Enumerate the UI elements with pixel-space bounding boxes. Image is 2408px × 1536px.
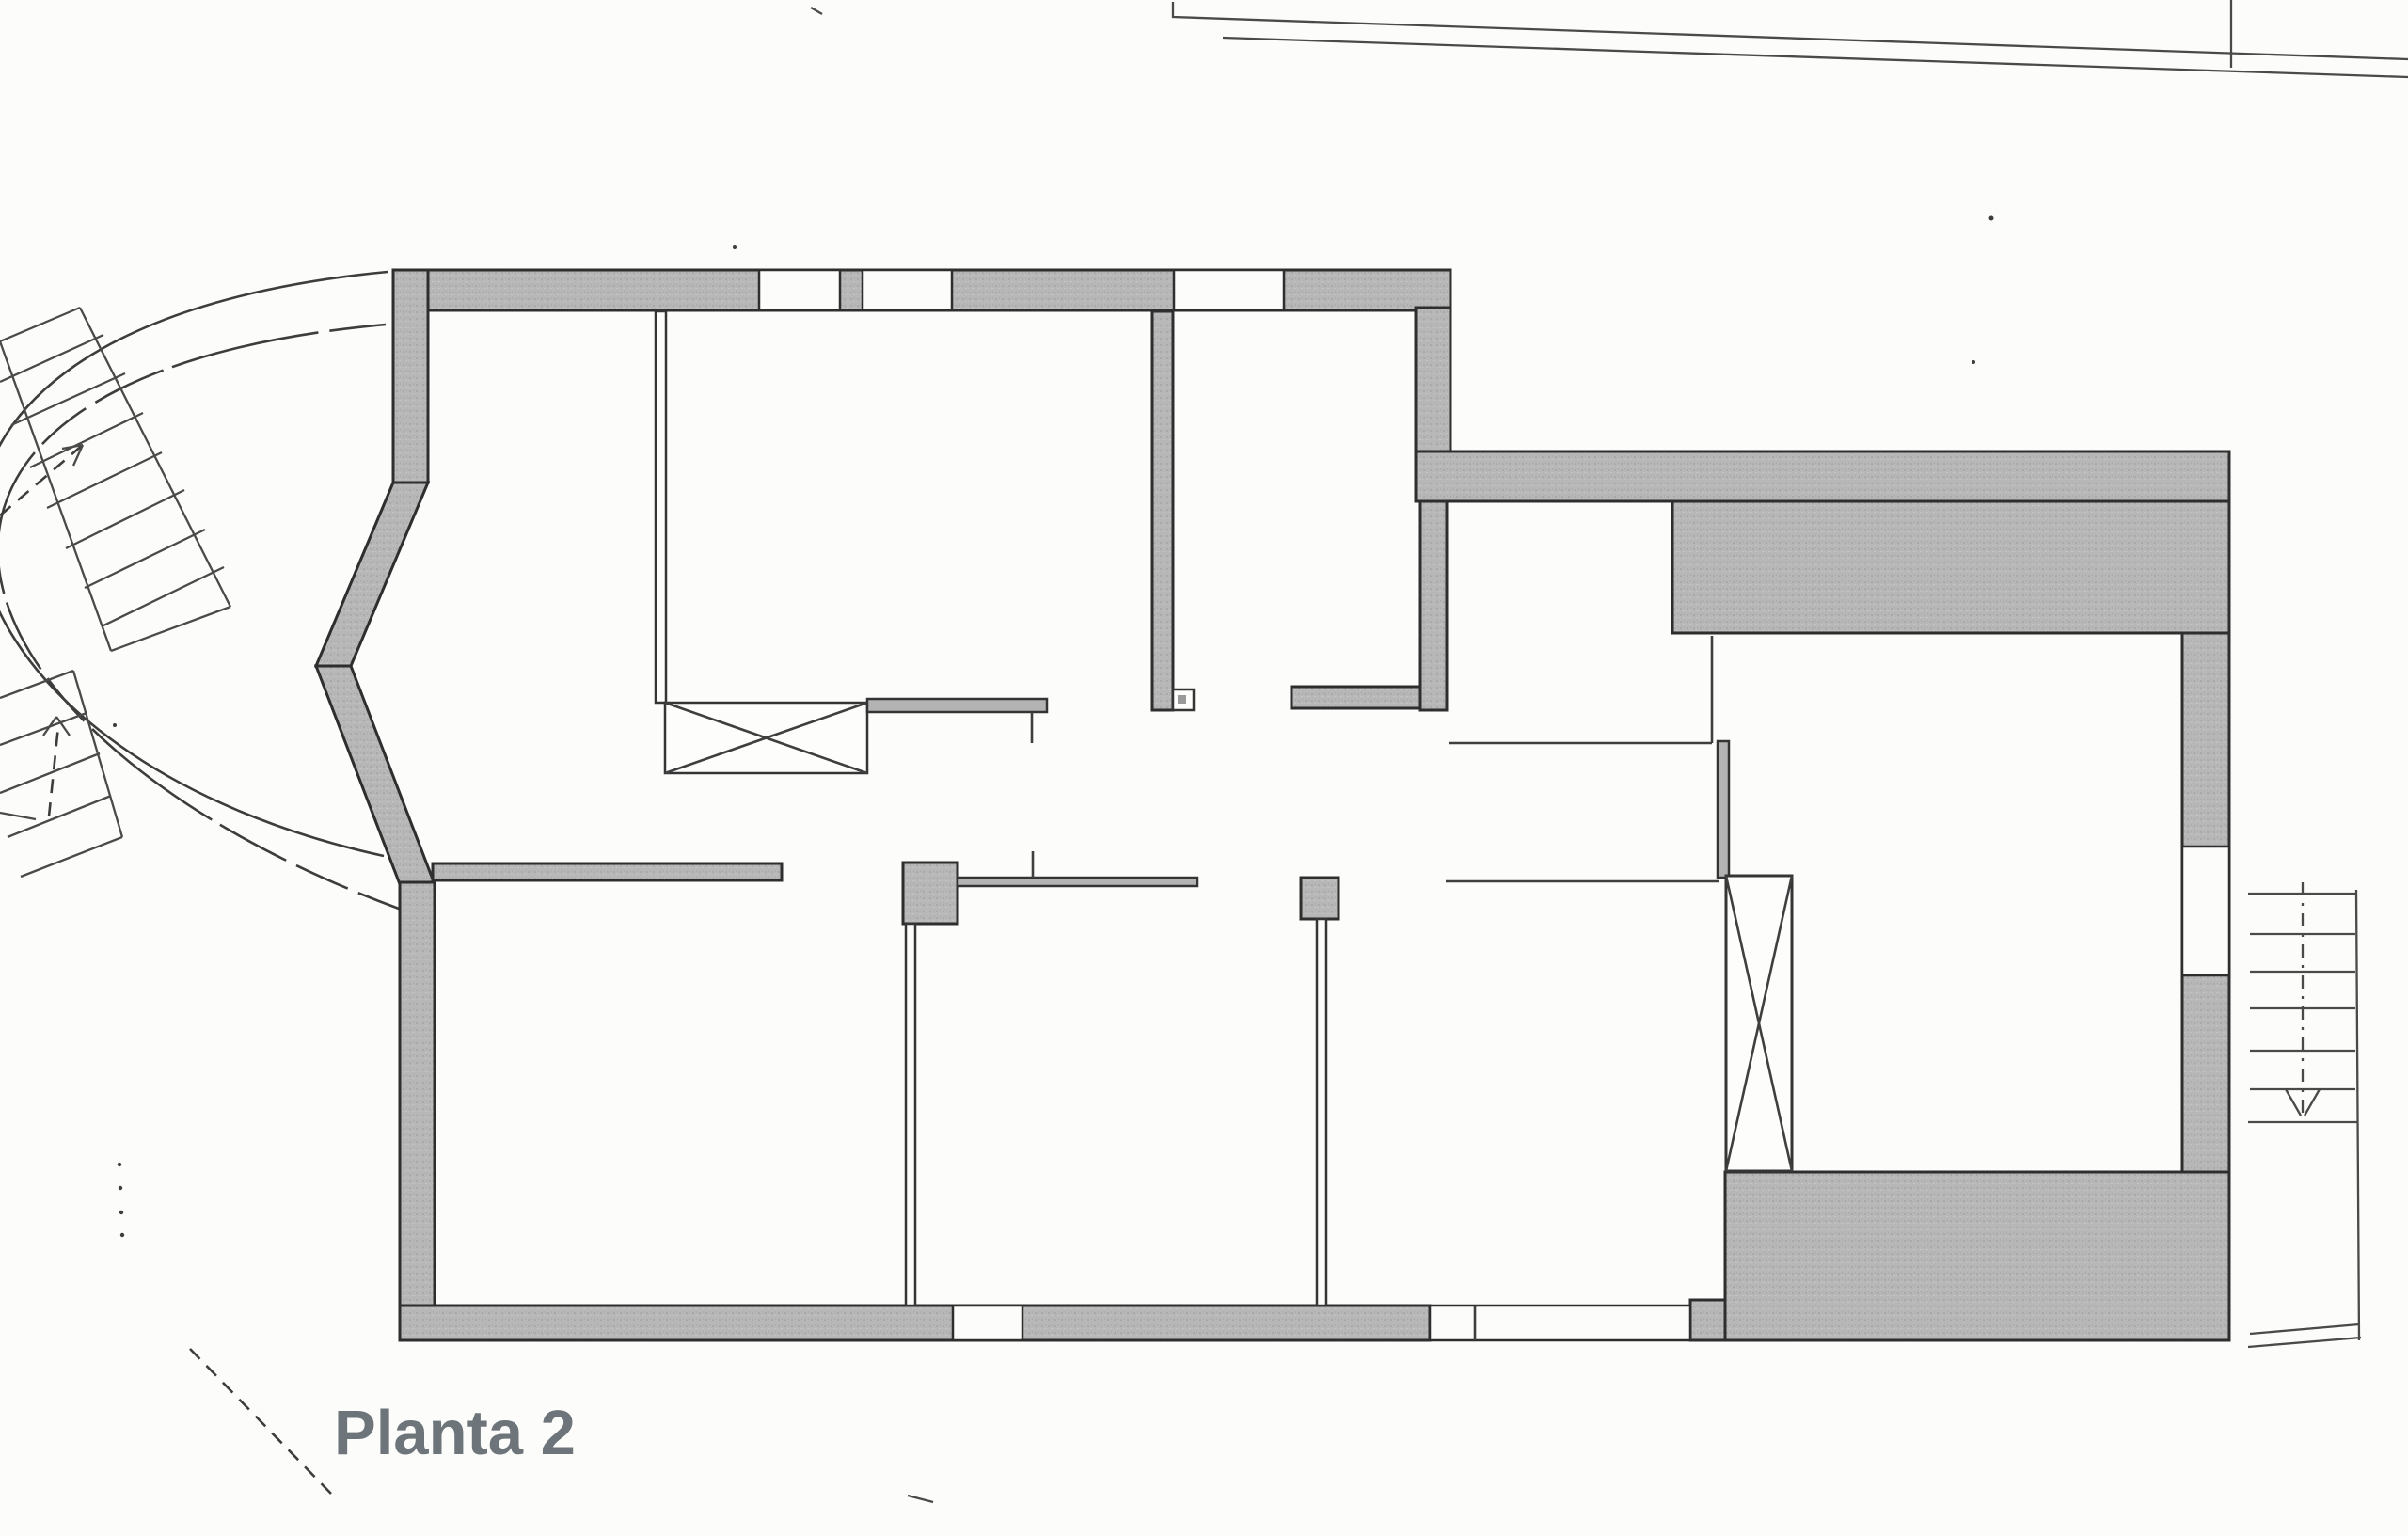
partition-bottom-room-1 — [906, 924, 915, 1306]
exterior-stairs-lower-left — [0, 671, 122, 877]
terrace-mass-top-right — [1672, 501, 2229, 633]
window-top-1 — [759, 270, 840, 310]
stair-edge — [2356, 890, 2359, 1340]
hall-wall-lower-middle — [958, 878, 1197, 886]
outer-wall-bottom — [400, 1306, 1430, 1340]
stair-arrowhead — [43, 717, 56, 736]
scan-mark — [811, 8, 822, 14]
column-block-2 — [1301, 878, 1339, 919]
outer-wall-bottom-step — [1690, 1300, 1725, 1340]
stair-edge — [2248, 1338, 2361, 1347]
outer-wall-right-upper — [1416, 308, 1450, 451]
stair-tread — [21, 837, 122, 877]
outer-wall-left-lower — [400, 882, 435, 1340]
scan-mark — [908, 1496, 933, 1502]
floor-plan-page: Planta 2 — [0, 0, 2408, 1536]
scan-mark — [1972, 360, 1975, 364]
partition-top-middle-room — [1152, 311, 1173, 710]
stair-tread — [0, 753, 100, 793]
bathroom-wall-left — [1420, 501, 1447, 710]
misc-scan-marks — [0, 8, 1994, 1502]
window-bottom-2-frame — [1430, 1306, 1690, 1340]
dotted-line-dot — [118, 1163, 121, 1166]
dotted-line-dot — [119, 1211, 123, 1214]
dashed-site-line — [190, 1349, 331, 1494]
stair-arrowhead — [2286, 1089, 2301, 1116]
partition-top-left-room — [656, 311, 666, 703]
stair-edge — [2250, 1324, 2359, 1334]
dotted-line-dot — [120, 1233, 124, 1237]
column-block-1 — [903, 863, 958, 924]
window-bottom-2 — [1430, 1306, 1690, 1340]
partition-bottom-room-2 — [1317, 919, 1326, 1306]
stair-arrowhead — [2305, 1089, 2320, 1116]
window-right — [2182, 847, 2229, 975]
stair-tread — [0, 713, 87, 745]
outer-wall-chamfer-lower — [316, 666, 435, 884]
stair-tread — [0, 308, 80, 341]
outer-wall-left-upper — [393, 270, 428, 483]
window-top-2 — [863, 270, 952, 310]
scan-mark — [113, 723, 117, 727]
stair-edge — [73, 671, 122, 837]
terrace-mass-bottom-right — [1725, 1172, 2229, 1340]
floor-label: Planta 2 — [334, 1398, 576, 1468]
terrace-wall-band-top-right — [1416, 451, 2229, 501]
hall-wall-upper-left — [867, 699, 1047, 712]
building-outer-walls — [316, 270, 2229, 1340]
scan-mark — [733, 245, 737, 249]
corridor-wall-right — [1718, 741, 1729, 878]
stair-tread — [102, 567, 224, 626]
exterior-stairs-right — [2248, 882, 2361, 1347]
scan-mark — [0, 813, 36, 819]
elevator-shaft-x — [1726, 876, 1792, 1171]
hall-wall-lower-left — [433, 863, 782, 880]
stair-tread — [66, 490, 184, 548]
stair-tread — [0, 671, 73, 698]
site-boundary-line — [1173, 2, 2408, 59]
hall-wall-upper-right — [1291, 687, 1428, 708]
stair-edge — [80, 308, 230, 607]
outer-wall-chamfer-upper — [316, 483, 428, 666]
door-post-mark — [1178, 695, 1186, 704]
stair-tread — [85, 530, 205, 588]
curved-driveway — [0, 272, 399, 909]
window-bottom-1 — [953, 1306, 1022, 1340]
window-top-3 — [1174, 270, 1284, 310]
dotted-line-dot — [119, 1186, 122, 1190]
kitchen-counter-x — [665, 703, 867, 773]
site-boundary-lines-top-right — [1173, 0, 2408, 77]
scan-mark — [1989, 216, 1994, 221]
floor-plan-drawing: Planta 2 — [0, 0, 2408, 1536]
